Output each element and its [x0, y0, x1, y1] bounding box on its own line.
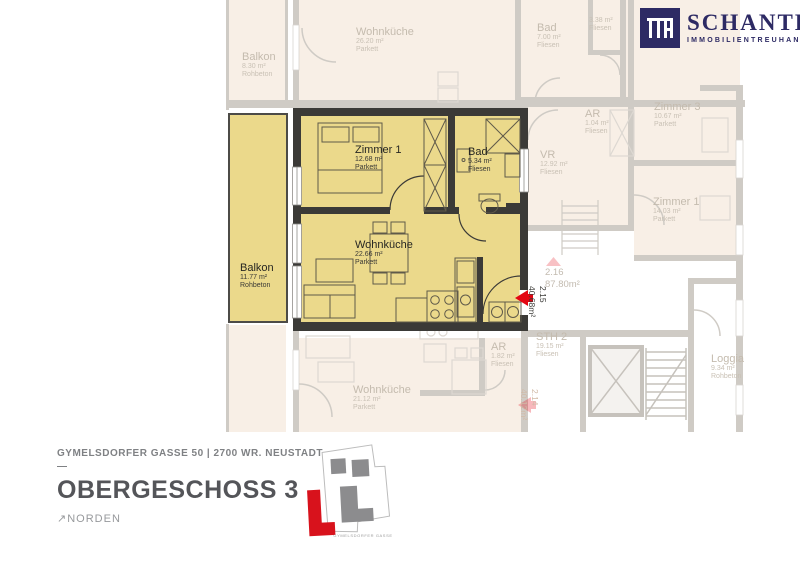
room-label-bad: Bad 5.34 m² Fliesen	[468, 146, 492, 174]
north-label: NORDEN	[67, 513, 121, 525]
bg-room-balkon-top: Balkon 8.30 m² Rohbeton	[242, 51, 276, 79]
unit-216-entry-arrow-faded	[546, 257, 561, 266]
floorplan-page: Zimmer 1 12.68 m² Parkett Bad 5.34 m² Fl…	[0, 0, 800, 565]
bg-room-vr: VR 12.92 m² Fliesen	[540, 149, 568, 177]
brand-name: SCHANTL	[687, 11, 800, 34]
ith-monogram-icon	[640, 8, 680, 48]
staircase	[646, 348, 686, 420]
footer: GYMELSDORFER GASSE 50 | 2700 WR. NEUSTAD…	[57, 448, 323, 525]
bg-room-wohnkueche-top: Wohnküche 26.20 m² Parkett	[356, 26, 414, 54]
page-title: OBERGESCHOSS 3	[57, 476, 323, 505]
room-label-wohnkueche: Wohnküche 22.66 m² Parkett	[355, 239, 413, 267]
bg-room-loggia: Loggia 9.34 m² Rohbeton	[711, 353, 744, 381]
room-label-zimmer1: Zimmer 1 12.68 m² Parkett	[355, 144, 401, 172]
elevator-shaft	[590, 347, 642, 415]
north-arrow-icon: ↗	[57, 513, 67, 525]
balcony-area	[229, 114, 287, 322]
bg-room-zimmer1: Zimmer 1 14.03 m² Parkett	[653, 196, 699, 224]
unit-label-214: 2.14 40.12m²	[519, 389, 540, 420]
divider-dash: —	[57, 462, 323, 472]
unit-label-215: 2.15 40.68m²	[527, 286, 548, 317]
bg-room-ar-top: AR 1.04 m² Fliesen	[585, 108, 609, 136]
bg-room-zimmer3: Zimmer 3 10.67 m² Parkett	[654, 101, 700, 129]
room-label-balkon: Balkon 11.77 m² Rohbeton	[240, 262, 274, 290]
bg-room-wc: 3.38 m² Fliesen	[589, 17, 613, 33]
site-plan-logo	[298, 438, 406, 538]
brand-logo: SCHANTL IMMOBILIENTREUHAND	[640, 8, 800, 48]
brand-tagline: IMMOBILIENTREUHAND	[687, 37, 800, 44]
unit-label-216: 2.16 87.80m²	[545, 267, 580, 292]
address-line: GYMELSDORFER GASSE 50 | 2700 WR. NEUSTAD…	[57, 448, 323, 459]
north-indicator: ↗NORDEN	[57, 512, 323, 525]
bg-room-sth2: STH 2 19.15 m² Fliesen	[536, 331, 567, 359]
bg-room-bad: Bad 7.00 m² Fliesen	[537, 22, 561, 50]
bg-room-wohnkueche-bottom: Wohnküche 21.12 m² Parkett	[353, 384, 411, 412]
bg-room-ar-bottom: AR 1.82 m² Fliesen	[491, 341, 515, 369]
brand-monogram-icon	[640, 8, 680, 48]
site-logo-caption: GYMELSDORFER GASSE	[318, 533, 408, 538]
